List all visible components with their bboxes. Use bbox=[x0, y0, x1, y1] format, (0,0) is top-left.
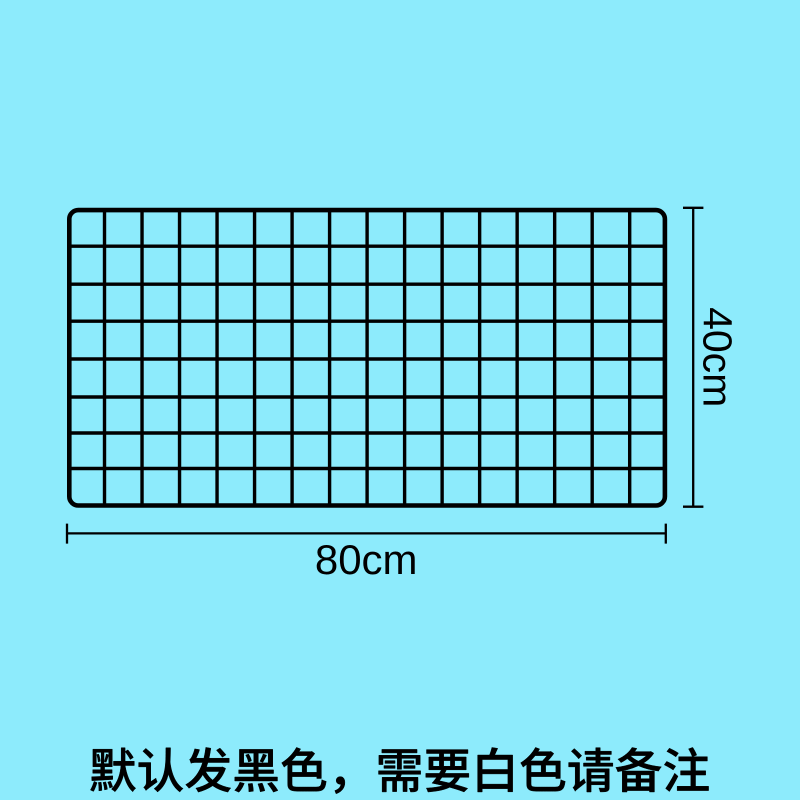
svg-text:40cm: 40cm bbox=[694, 307, 740, 407]
svg-text:80cm: 80cm bbox=[315, 536, 418, 583]
